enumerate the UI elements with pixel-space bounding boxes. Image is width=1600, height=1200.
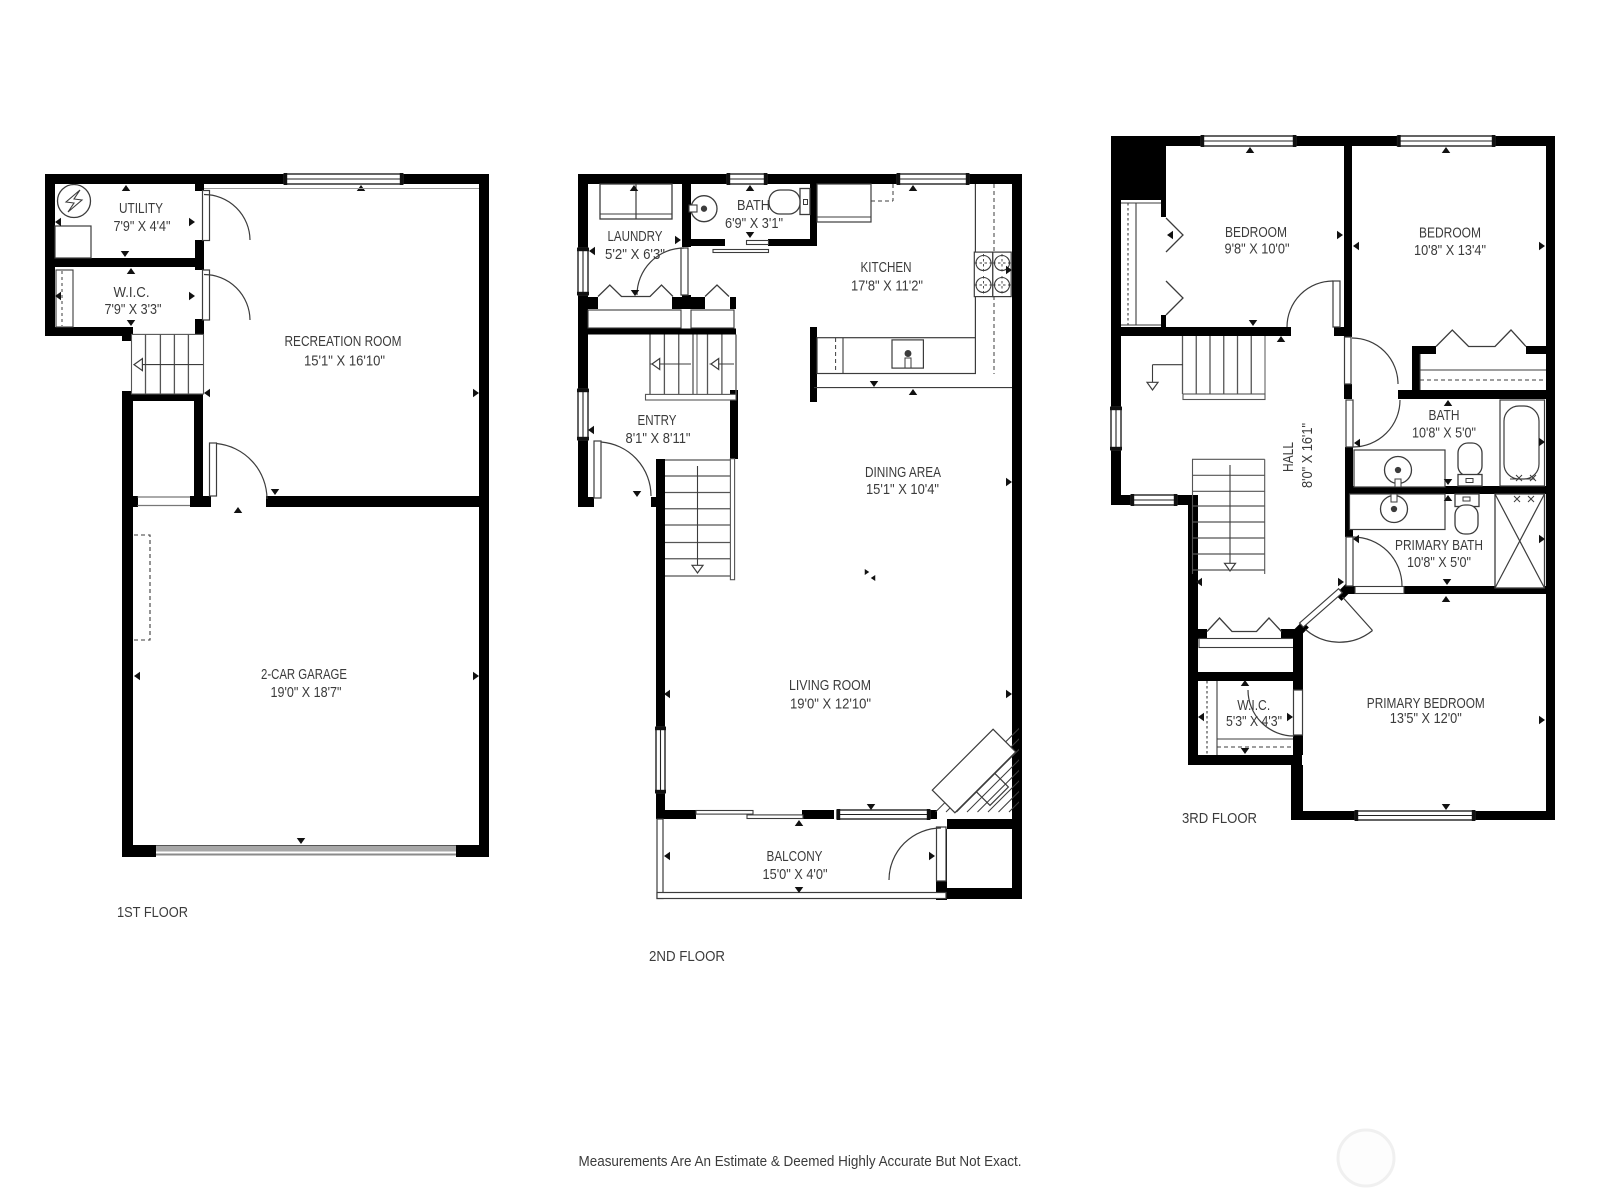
svg-text:3RD FLOOR: 3RD FLOOR — [1182, 810, 1257, 827]
svg-text:7'9" X 3'3": 7'9" X 3'3" — [105, 301, 162, 318]
svg-text:6'9" X 3'1": 6'9" X 3'1" — [725, 215, 783, 232]
svg-text:Measurements Are An Estimate &: Measurements Are An Estimate & Deemed Hi… — [579, 1153, 1022, 1170]
svg-text:8'0" X 16'1": 8'0" X 16'1" — [1299, 423, 1316, 488]
svg-text:BATH: BATH — [1429, 407, 1460, 424]
svg-text:17'8" X 11'2": 17'8" X 11'2" — [851, 278, 923, 295]
svg-text:DINING AREA: DINING AREA — [865, 464, 941, 481]
svg-text:10'8" X 13'4": 10'8" X 13'4" — [1414, 242, 1486, 259]
svg-text:7'9" X 4'4": 7'9" X 4'4" — [114, 218, 171, 235]
svg-text:19'0" X 12'10": 19'0" X 12'10" — [790, 696, 871, 713]
svg-text:PRIMARY BATH: PRIMARY BATH — [1395, 537, 1483, 554]
svg-text:LIVING ROOM: LIVING ROOM — [789, 677, 871, 694]
svg-text:LAUNDRY: LAUNDRY — [608, 228, 663, 245]
svg-text:13'5" X 12'0": 13'5" X 12'0" — [1390, 710, 1462, 727]
svg-text:5'3" X 4'3": 5'3" X 4'3" — [1226, 713, 1282, 730]
svg-text:19'0" X 18'7": 19'0" X 18'7" — [271, 684, 342, 701]
svg-text:W.I.C.: W.I.C. — [1237, 697, 1270, 714]
svg-text:5'2" X 6'3": 5'2" X 6'3" — [605, 246, 665, 263]
svg-text:KITCHEN: KITCHEN — [861, 259, 912, 276]
svg-text:BATH: BATH — [737, 197, 770, 214]
svg-text:ENTRY: ENTRY — [638, 412, 677, 429]
svg-text:15'1" X 10'4": 15'1" X 10'4" — [866, 481, 939, 498]
svg-text:BEDROOM: BEDROOM — [1225, 224, 1287, 241]
svg-text:15'1" X 16'10": 15'1" X 16'10" — [304, 353, 385, 370]
svg-text:15'0" X 4'0": 15'0" X 4'0" — [763, 866, 828, 883]
svg-text:9'8" X 10'0": 9'8" X 10'0" — [1225, 241, 1290, 258]
svg-text:W.I.C.: W.I.C. — [114, 284, 150, 301]
svg-text:BALCONY: BALCONY — [767, 848, 823, 865]
svg-text:RECREATION ROOM: RECREATION ROOM — [285, 333, 402, 350]
svg-text:UTILITY: UTILITY — [119, 200, 163, 217]
svg-text:2ND FLOOR: 2ND FLOOR — [649, 948, 725, 965]
svg-text:8'1" X 8'11": 8'1" X 8'11" — [626, 430, 691, 447]
svg-text:1ST FLOOR: 1ST FLOOR — [117, 904, 188, 921]
svg-text:10'8" X 5'0": 10'8" X 5'0" — [1412, 425, 1476, 442]
svg-text:10'8" X 5'0": 10'8" X 5'0" — [1407, 554, 1471, 571]
svg-text:HALL: HALL — [1280, 442, 1297, 472]
svg-text:2-CAR GARAGE: 2-CAR GARAGE — [261, 666, 347, 683]
svg-text:BEDROOM: BEDROOM — [1419, 225, 1481, 242]
